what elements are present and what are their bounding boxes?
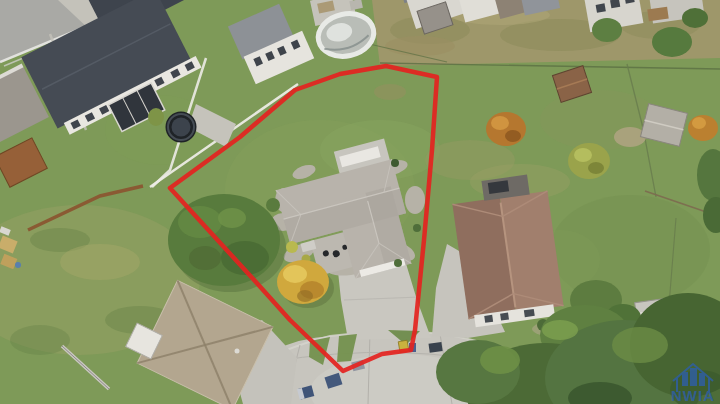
tree-top-2 (652, 27, 692, 57)
tree-top-1 (592, 18, 622, 42)
tree-autumn-orange (486, 112, 526, 146)
bush-yellow-green (568, 143, 610, 179)
tree-autumn-right-edge (688, 115, 718, 141)
watermark-text: NWIA (671, 387, 715, 404)
aerial-photo-canvas: NWIA (0, 0, 720, 404)
hot-tub (166, 112, 197, 143)
tree-top-3 (682, 8, 708, 28)
curb-marker (235, 349, 240, 354)
aerial-photo: NWIA (0, 0, 720, 404)
utility-box-dark (429, 342, 443, 353)
